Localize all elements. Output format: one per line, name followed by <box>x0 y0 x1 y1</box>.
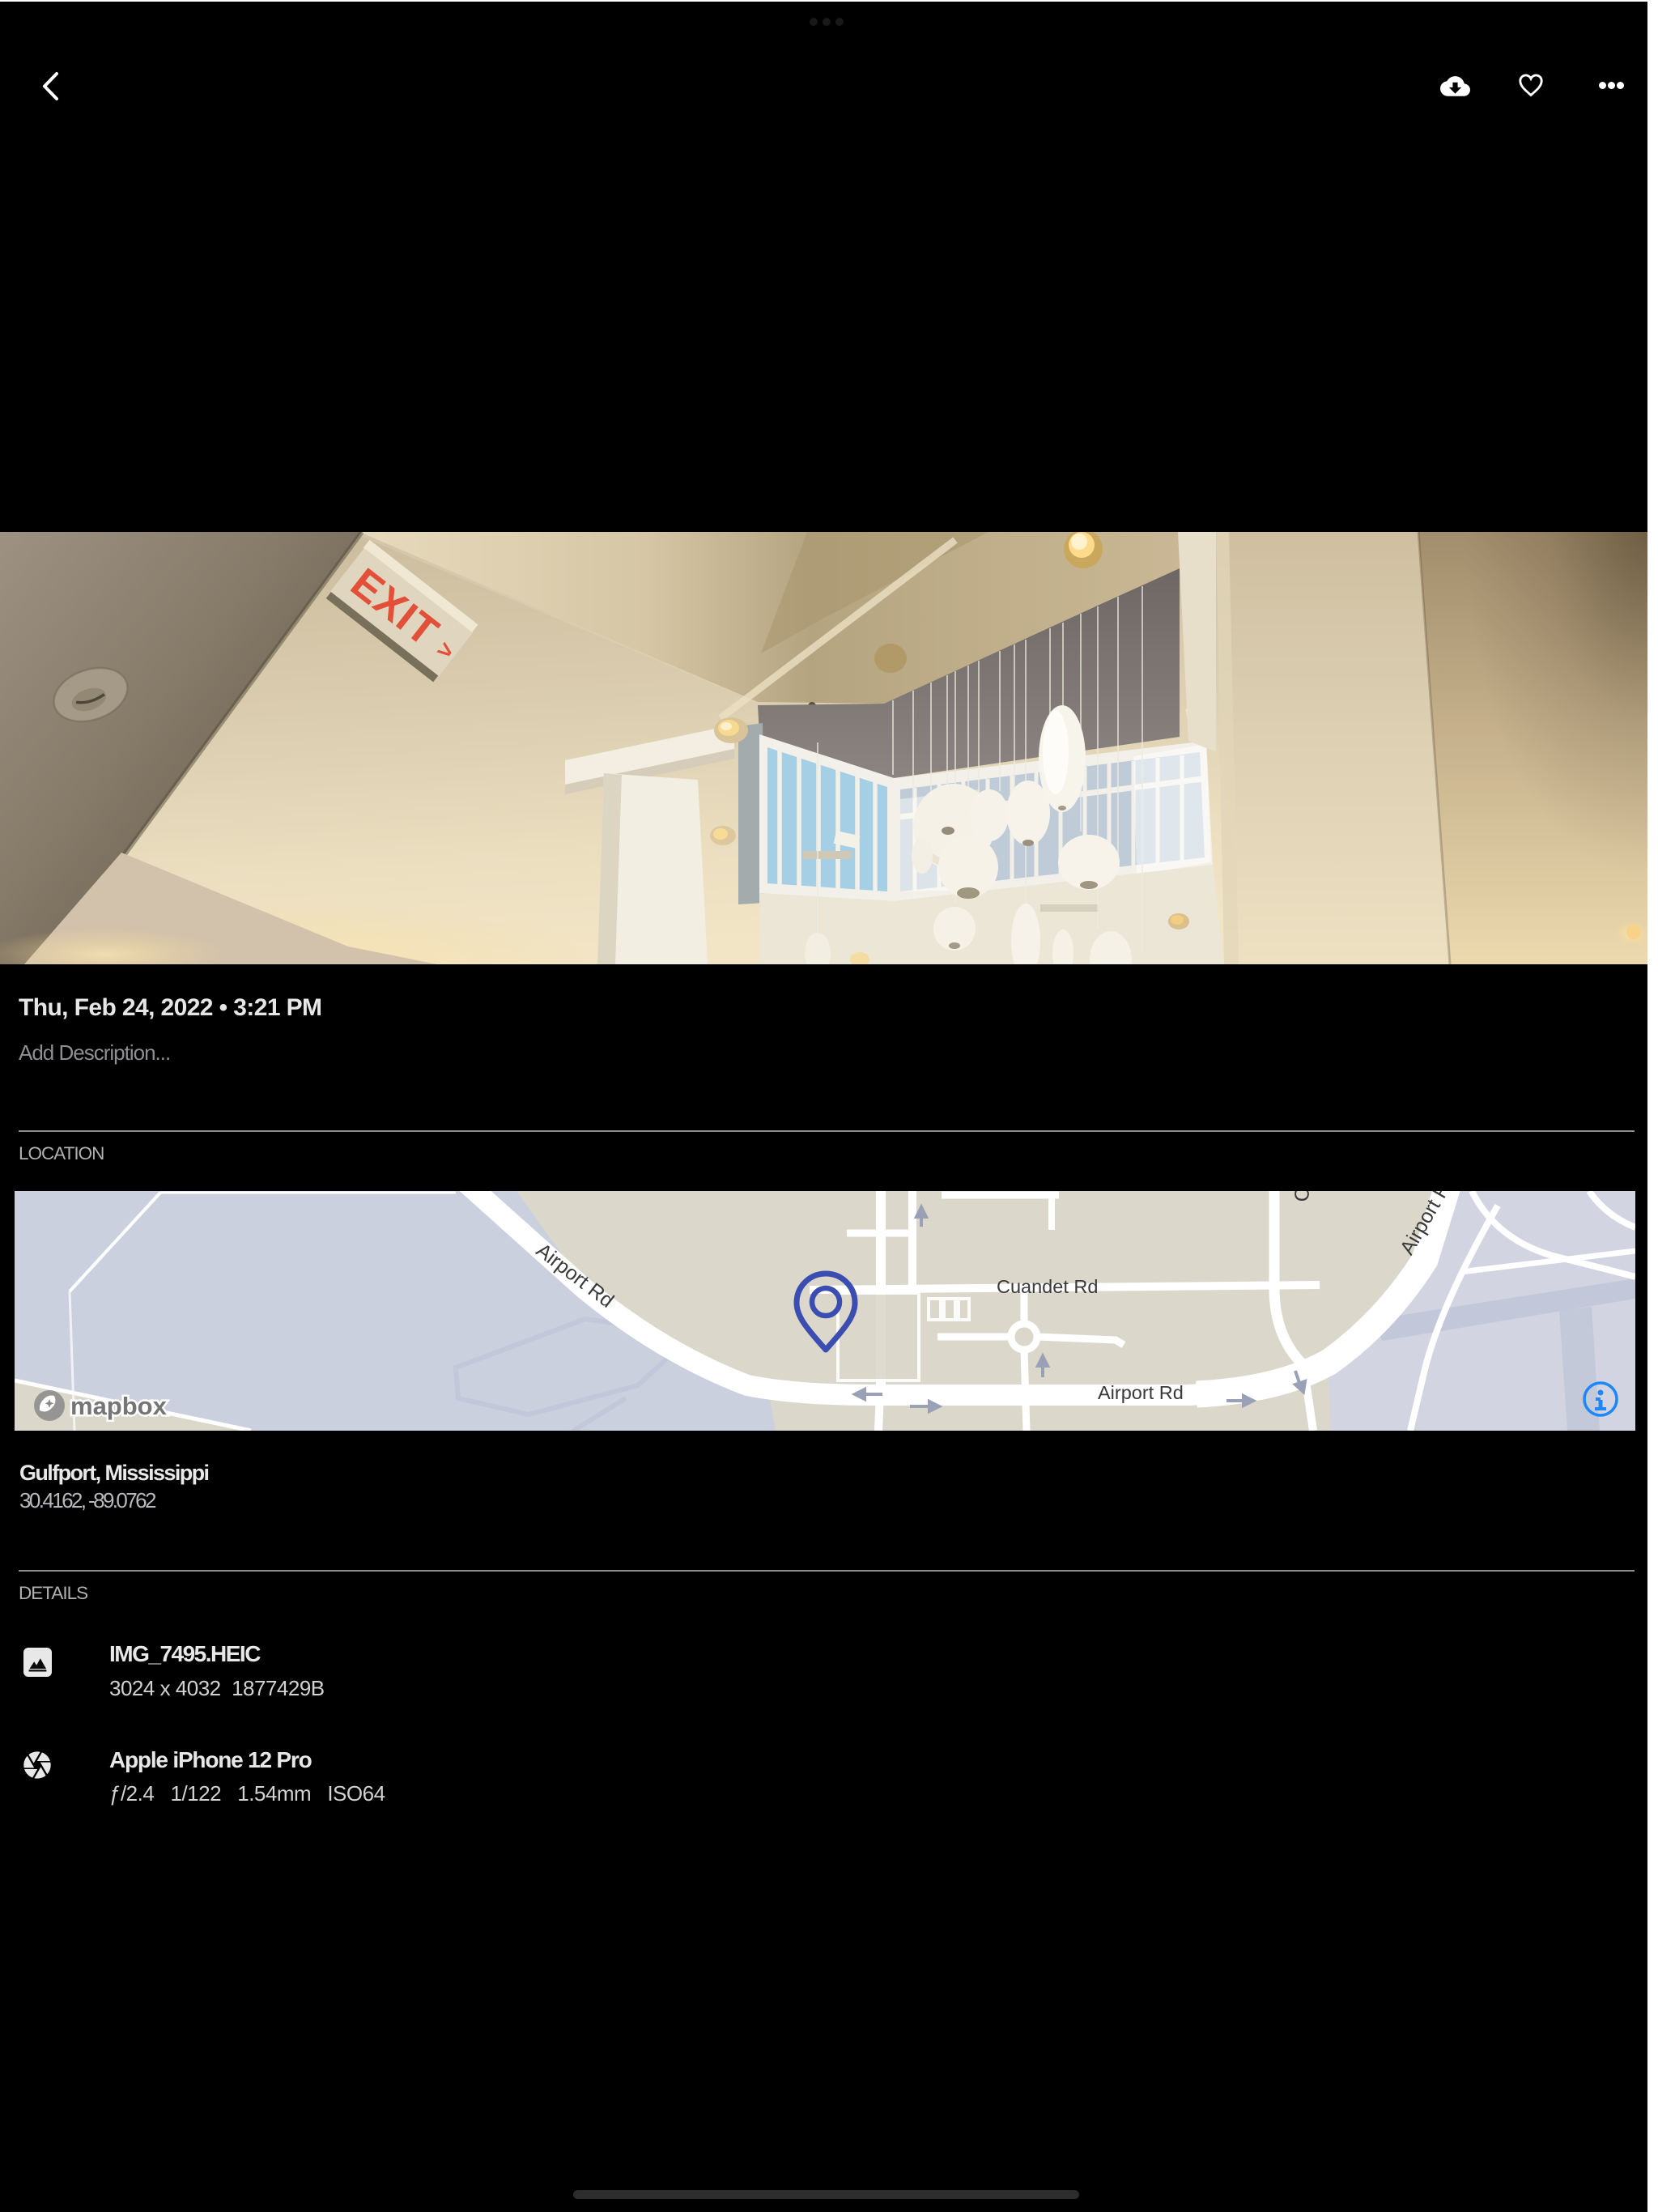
svg-text:mapbox: mapbox <box>70 1392 168 1420</box>
svg-text:Airport Rd: Airport Rd <box>1098 1382 1184 1403</box>
svg-text:Cu: Cu <box>1290 1191 1316 1203</box>
svg-text:Cuandet Rd: Cuandet Rd <box>997 1276 1098 1297</box>
